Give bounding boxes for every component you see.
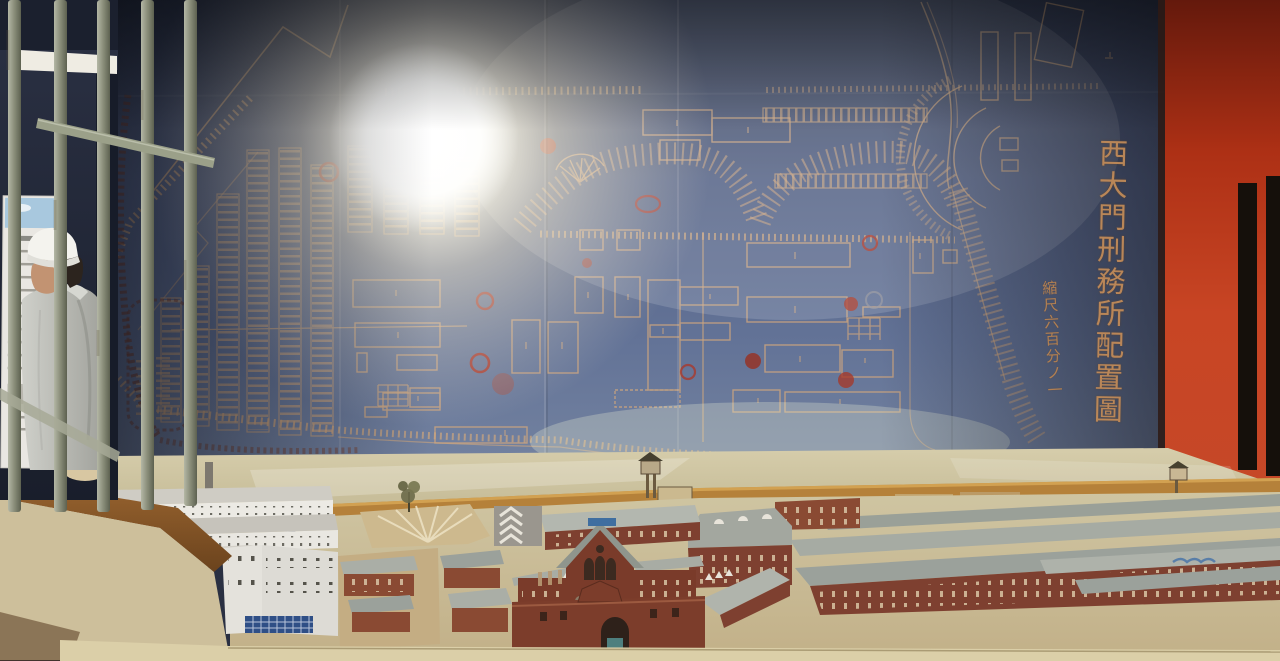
blue-grid-plot [245, 616, 313, 633]
flash-glare [112, 0, 1165, 482]
dark-frame-right [1266, 176, 1280, 476]
bar-5 [184, 0, 197, 506]
sawtooth-building [494, 506, 542, 546]
bar-4 [141, 0, 154, 510]
scene-canvas [0, 0, 1280, 661]
blue-sign [588, 518, 616, 526]
red-accent-wall [1158, 0, 1280, 505]
bar-3 [97, 0, 110, 512]
map-panel [104, 0, 1165, 482]
dark-frame-left [1238, 183, 1257, 470]
bar-2 [54, 0, 67, 512]
bar-1 [8, 0, 21, 512]
exhibit-photo: 西大門刑務所配置圖 縮尺六百分ノ一 [0, 0, 1280, 661]
